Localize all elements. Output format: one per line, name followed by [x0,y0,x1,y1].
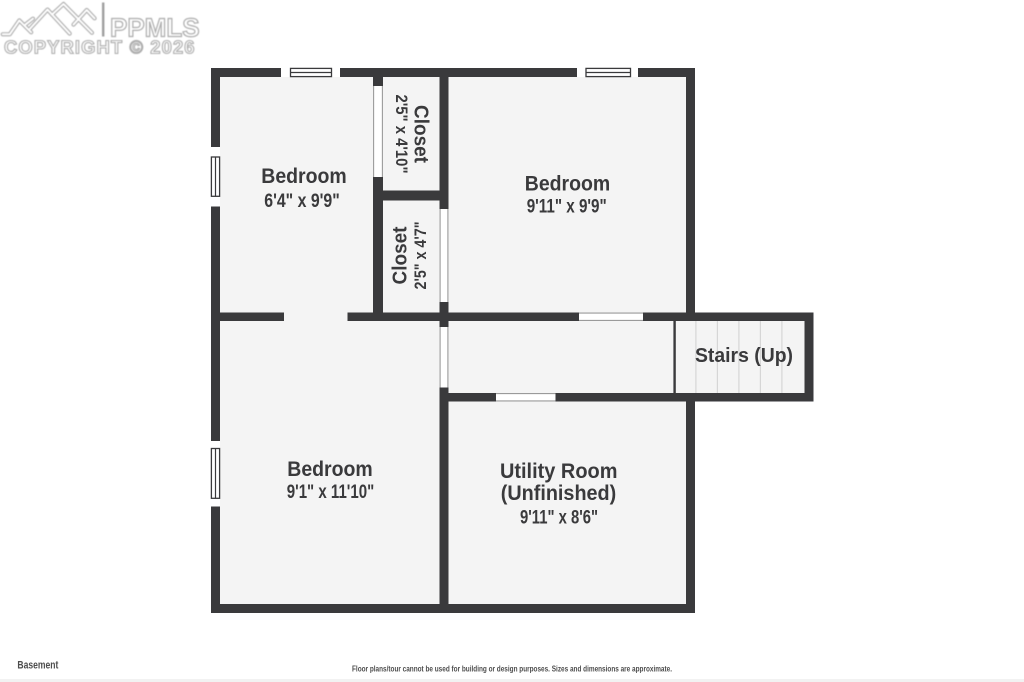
svg-text:Stairs (Up): Stairs (Up) [695,345,793,367]
svg-text:6'4" x 9'9": 6'4" x 9'9" [264,191,340,212]
svg-text:2'5" x 4'10": 2'5" x 4'10" [392,95,411,174]
svg-text:Utility Room: Utility Room [500,459,618,483]
svg-text:Closet: Closet [390,226,412,284]
svg-text:9'1" x 11'10": 9'1" x 11'10" [287,482,375,503]
svg-text:Floor plans/tour cannot be use: Floor plans/tour cannot be used for buil… [352,664,672,673]
svg-text:(Unfinished): (Unfinished) [501,481,617,505]
svg-text:Bedroom: Bedroom [287,457,373,481]
svg-text:2'5" x 4'7": 2'5" x 4'7" [411,222,430,290]
svg-text:Basement: Basement [17,660,58,672]
svg-text:9'11" x 8'6": 9'11" x 8'6" [520,508,598,529]
svg-text:9'11" x 9'9": 9'11" x 9'9" [527,197,607,218]
svg-text:Bedroom: Bedroom [525,172,611,196]
svg-text:Closet: Closet [410,105,432,163]
svg-text:COPYRIGHT © 2026: COPYRIGHT © 2026 [4,37,196,58]
svg-text:Bedroom: Bedroom [261,164,347,188]
